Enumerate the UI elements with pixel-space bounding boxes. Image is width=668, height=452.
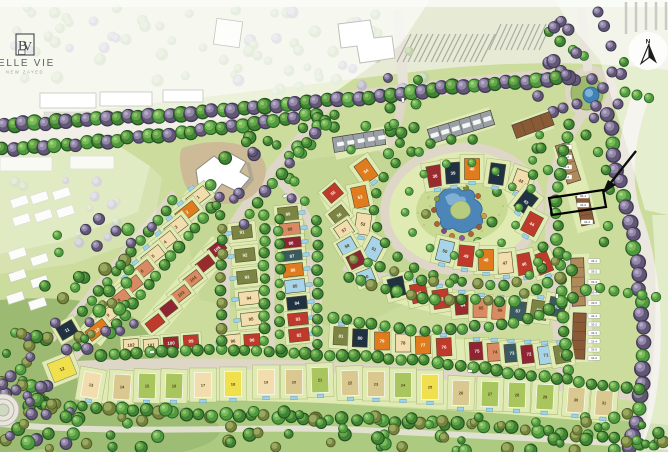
svg-text:NEW ZAYED: NEW ZAYED — [6, 70, 44, 75]
svg-text:76: 76 — [441, 344, 447, 349]
svg-text:32-3: 32-3 — [591, 331, 597, 335]
svg-text:81: 81 — [338, 333, 344, 338]
svg-text:34-2: 34-2 — [580, 203, 586, 207]
svg-text:79: 79 — [380, 339, 385, 344]
svg-text:34-4: 34-4 — [584, 220, 590, 224]
svg-text:98: 98 — [249, 337, 255, 342]
svg-text:32-5: 32-5 — [591, 348, 597, 352]
svg-text:17: 17 — [201, 382, 206, 387]
svg-text:32-4: 32-4 — [591, 339, 597, 343]
svg-text:32-2: 32-2 — [591, 323, 597, 327]
svg-text:N: N — [646, 39, 651, 46]
svg-text:32-6: 32-6 — [591, 356, 597, 360]
svg-text:V: V — [23, 40, 32, 54]
svg-text:99: 99 — [188, 338, 194, 343]
svg-text:65: 65 — [479, 306, 484, 311]
svg-text:100: 100 — [167, 340, 175, 346]
svg-text:34-1: 34-1 — [580, 194, 586, 198]
svg-text:33-1: 33-1 — [591, 259, 597, 263]
svg-text:77: 77 — [420, 342, 426, 347]
svg-text:78: 78 — [401, 341, 406, 346]
svg-text:40: 40 — [470, 167, 475, 172]
svg-text:19: 19 — [264, 379, 269, 384]
svg-text:33-5: 33-5 — [591, 301, 597, 305]
svg-text:39: 39 — [450, 170, 456, 175]
svg-text:32-1: 32-1 — [591, 314, 597, 318]
svg-text:25: 25 — [428, 384, 433, 389]
svg-text:ELLE VIE: ELLE VIE — [0, 58, 55, 69]
svg-text:75: 75 — [474, 348, 480, 353]
svg-text:33-2: 33-2 — [591, 270, 597, 274]
svg-text:24: 24 — [401, 382, 406, 387]
svg-text:33-3: 33-3 — [591, 280, 597, 284]
svg-text:102: 102 — [127, 342, 135, 348]
svg-text:66: 66 — [497, 307, 503, 312]
svg-text:23: 23 — [374, 381, 379, 386]
svg-text:20: 20 — [292, 379, 297, 384]
svg-text:48: 48 — [484, 258, 489, 263]
svg-text:80: 80 — [357, 336, 363, 341]
svg-text:18: 18 — [231, 381, 236, 386]
svg-text:74: 74 — [492, 349, 498, 354]
